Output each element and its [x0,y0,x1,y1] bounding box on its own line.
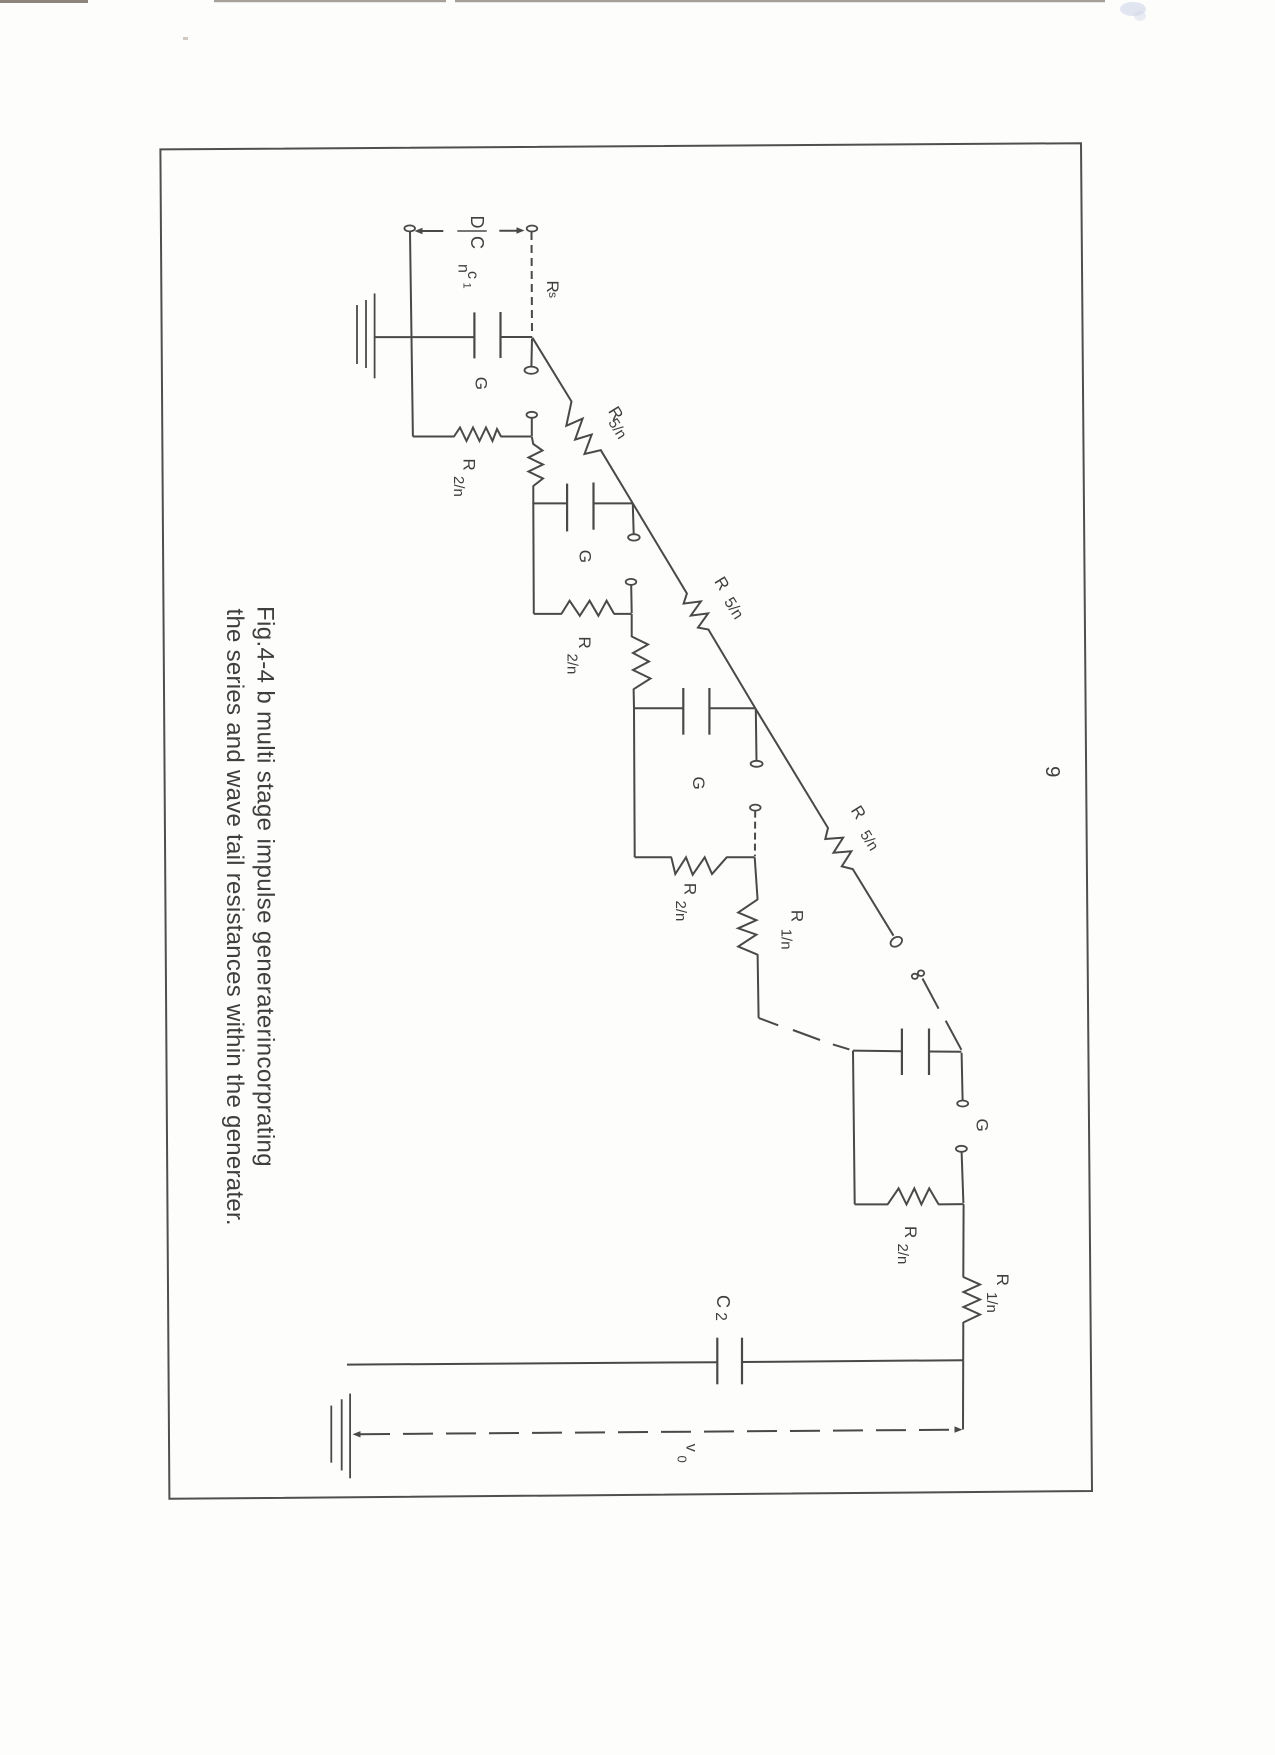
svg-text:the series and wave tail resis: the series and wave tail resistances wit… [221,609,248,1226]
svg-text:C: C [713,1295,733,1308]
svg-text:R: R [681,883,700,895]
svg-text:2/n: 2/n [564,654,581,675]
svg-text:C: C [467,236,487,249]
svg-text:5/n: 5/n [856,827,881,854]
svg-text:2/n: 2/n [894,1244,911,1265]
svg-text:D: D [467,216,487,229]
svg-text:0: 0 [675,1456,690,1463]
svg-text:G: G [576,550,595,563]
svg-text:1/n: 1/n [983,1292,1000,1313]
svg-text:v: v [683,1444,700,1452]
svg-text:R: R [901,1226,920,1238]
svg-text:1/n: 1/n [777,929,794,950]
svg-text:9: 9 [1041,766,1064,777]
svg-text:R: R [543,281,562,293]
svg-text:2/n: 2/n [450,476,467,497]
svg-text:Fig.4-4 b multi stage impulse: Fig.4-4 b multi stage impulse generateri… [252,606,279,1167]
svg-text:2: 2 [712,1312,729,1321]
svg-text:s: s [546,292,560,298]
svg-text:G: G [973,1119,992,1132]
svg-text:G: G [472,377,491,390]
svg-text:R: R [711,573,734,593]
svg-text:R: R [575,637,594,649]
svg-text:c: c [464,271,481,279]
svg-text:G: G [689,777,708,790]
svg-text:R: R [788,910,807,922]
svg-text:R: R [847,802,870,822]
svg-text:R: R [459,459,478,471]
svg-text:2/n: 2/n [672,901,689,922]
svg-text:1: 1 [461,283,473,289]
svg-text:R: R [993,1274,1012,1286]
svg-text:5/n: 5/n [720,595,746,623]
